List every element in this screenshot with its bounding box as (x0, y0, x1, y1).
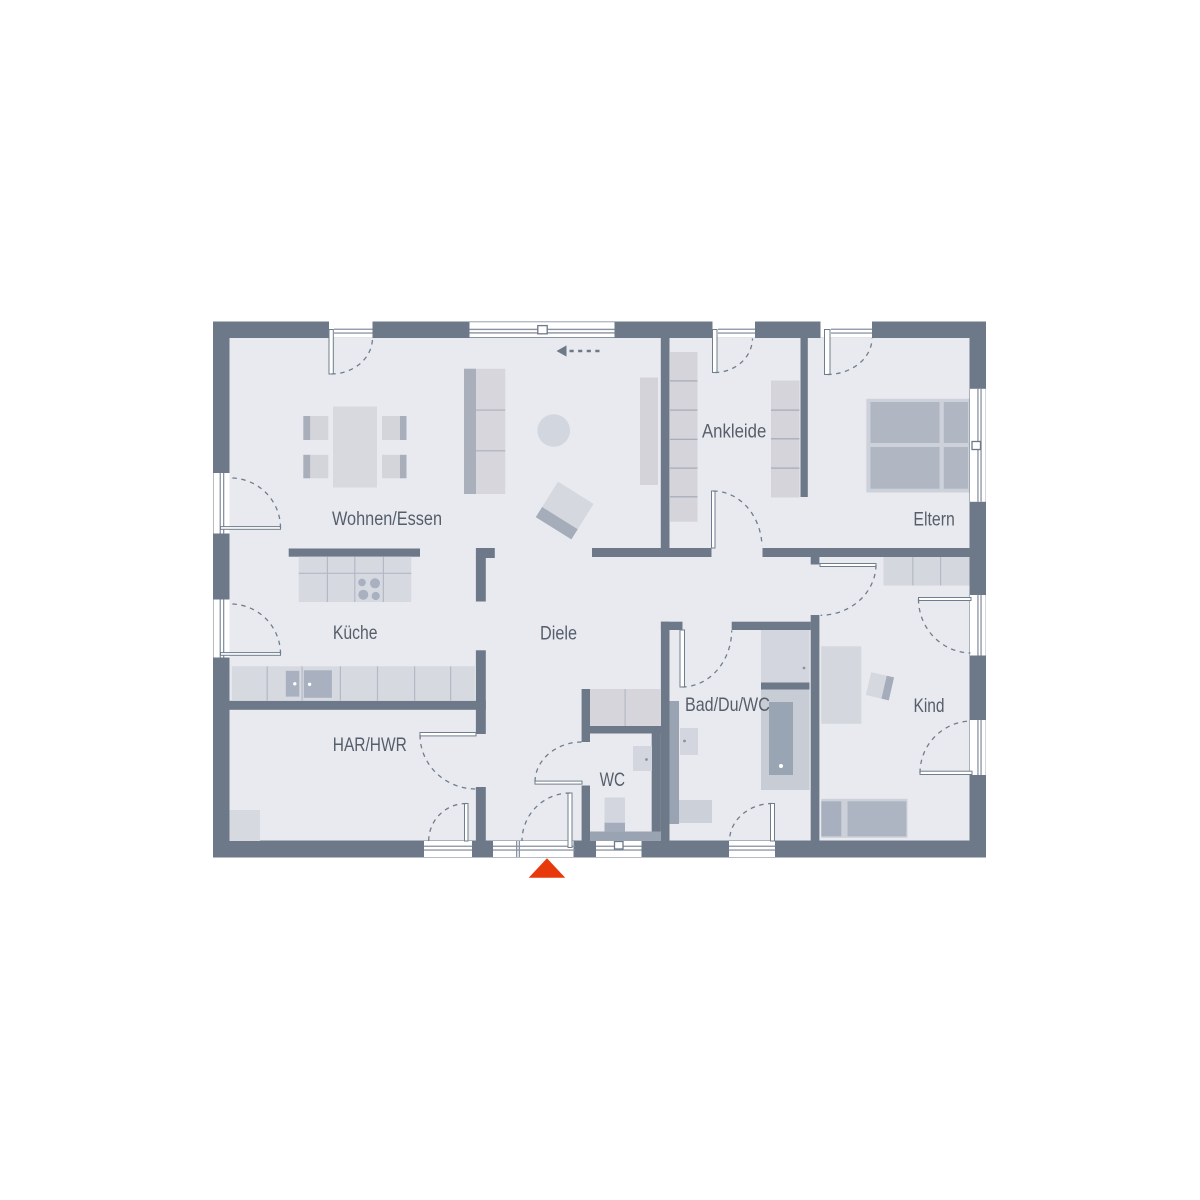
svg-text:Küche: Küche (333, 622, 378, 644)
svg-text:HAR/HWR: HAR/HWR (333, 734, 407, 756)
svg-text:Bad/Du/WC: Bad/Du/WC (685, 694, 770, 716)
svg-text:Kind: Kind (914, 695, 945, 717)
svg-text:Ankleide: Ankleide (702, 421, 766, 443)
svg-text:Wohnen/Essen: Wohnen/Essen (332, 508, 442, 530)
svg-text:Diele: Diele (540, 623, 577, 645)
svg-text:Eltern: Eltern (913, 509, 954, 531)
svg-text:WC: WC (600, 769, 625, 791)
